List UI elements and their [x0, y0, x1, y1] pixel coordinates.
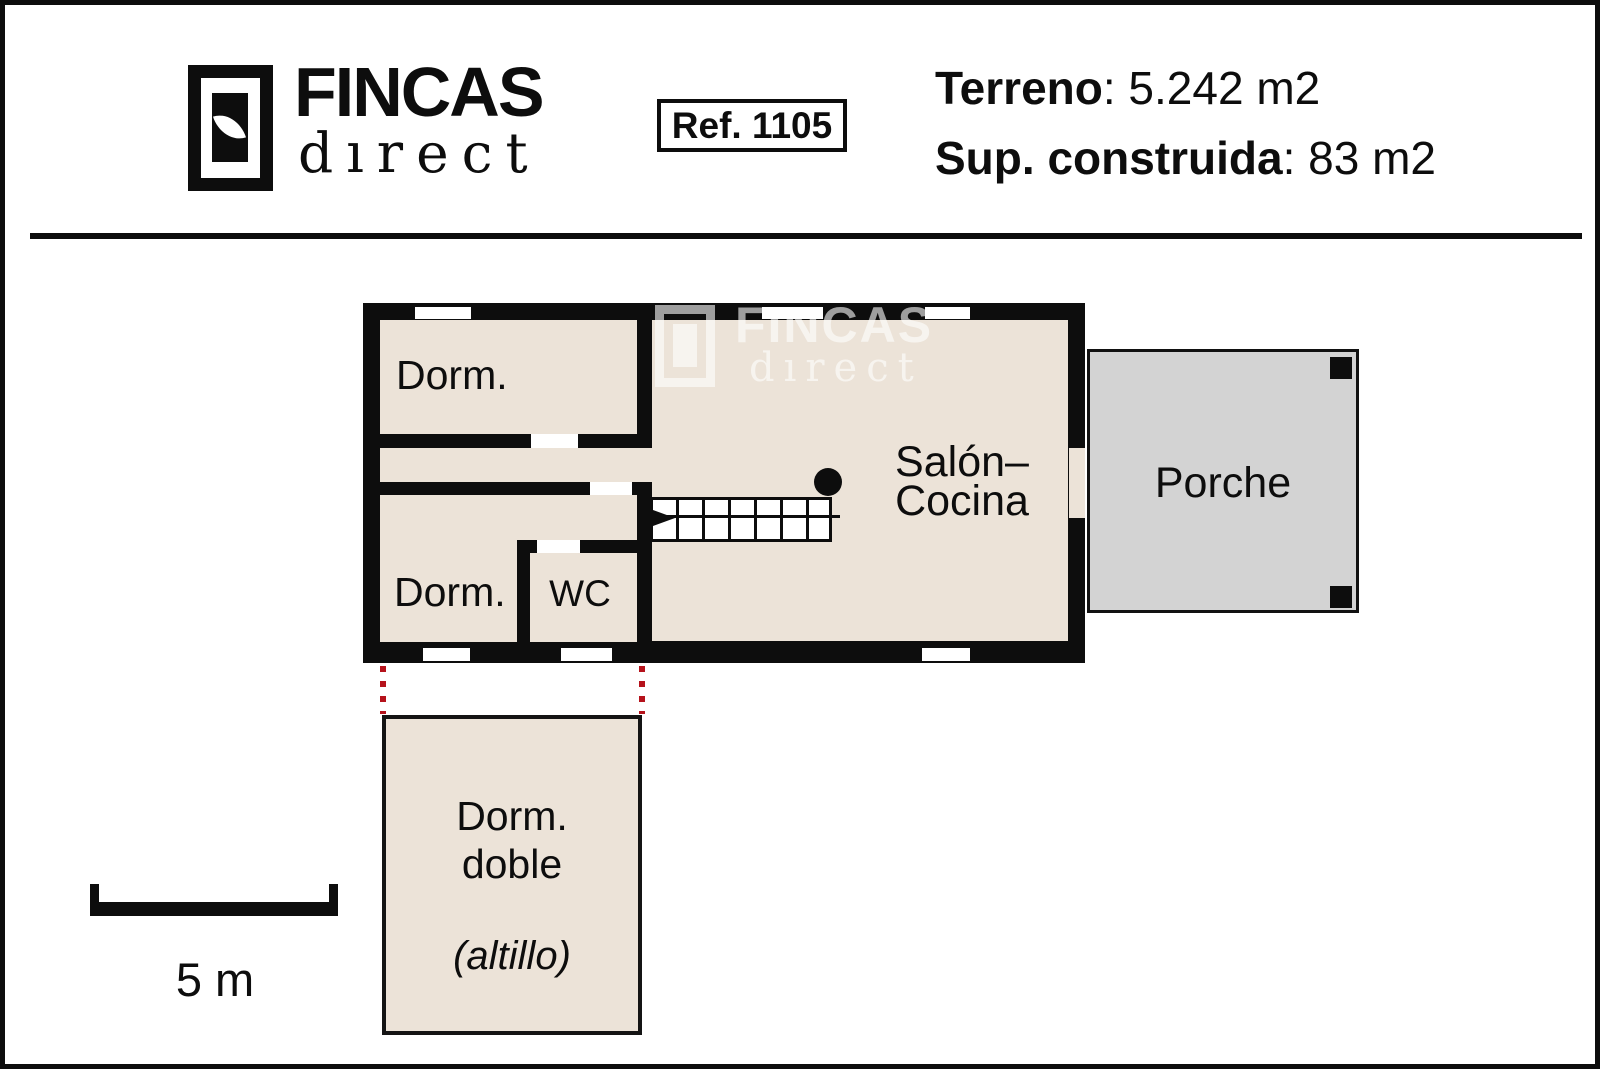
brand-subname: dırect	[298, 126, 541, 181]
label-wc: WC	[525, 575, 635, 612]
label-salon-line2: Cocina	[852, 482, 1072, 521]
built-area-fact: Sup. construida: 83 m2	[935, 133, 1436, 184]
projection-line	[639, 666, 645, 714]
label-annex-line1: Dorm.	[386, 796, 638, 837]
ref-badge: Ref. 1105	[657, 99, 847, 152]
leaf-logo-icon	[188, 65, 273, 191]
logo-inner-block	[212, 93, 248, 162]
door-opening	[537, 540, 580, 553]
scale-label: 5 m	[115, 952, 315, 1007]
stair-direction-arrow	[653, 510, 675, 526]
label-salon-cocina: Salón– Cocina	[852, 443, 1072, 521]
door-opening	[531, 434, 578, 448]
floorplan-flyer: FINCAS dırect Ref. 1105 Terreno: 5.242 m…	[0, 0, 1600, 1069]
watermark-leaf-logo-icon	[655, 305, 715, 387]
built-area-label: Sup. construida	[935, 132, 1283, 184]
projection-line	[380, 666, 386, 714]
door-opening	[590, 482, 632, 495]
label-dorm-bottom: Dorm.	[394, 572, 506, 613]
header-divider	[30, 233, 1582, 239]
watermark-brand-subname: dırect	[749, 348, 923, 388]
staircase	[650, 497, 832, 542]
window-opening	[922, 648, 970, 661]
window-opening	[415, 307, 471, 319]
porch-post	[1330, 586, 1352, 608]
scale-bar	[90, 902, 338, 916]
terreno-label: Terreno	[935, 62, 1103, 114]
watermark-logo-inner	[673, 324, 697, 367]
label-annex-line2: doble	[386, 844, 638, 885]
label-annex-line3: (altillo)	[386, 936, 638, 976]
built-area-value: : 83 m2	[1283, 132, 1436, 184]
brand-name: FINCAS	[294, 57, 543, 127]
terreno-value: : 5.242 m2	[1103, 62, 1320, 114]
newel-post	[814, 468, 842, 496]
ref-text: Ref. 1105	[672, 105, 832, 147]
scale-tick	[90, 884, 99, 916]
label-porche: Porche	[1089, 462, 1357, 505]
label-dorm-top: Dorm.	[396, 355, 508, 396]
porch-post	[1330, 357, 1352, 379]
staircase-center-line	[650, 515, 840, 518]
terreno-fact: Terreno: 5.242 m2	[935, 63, 1320, 114]
room-corridor	[380, 448, 652, 482]
window-opening	[561, 648, 612, 661]
watermark-brand-name: FINCAS	[735, 300, 933, 350]
scale-tick	[329, 884, 338, 916]
leaf-shape	[213, 109, 246, 145]
window-opening	[423, 648, 470, 661]
